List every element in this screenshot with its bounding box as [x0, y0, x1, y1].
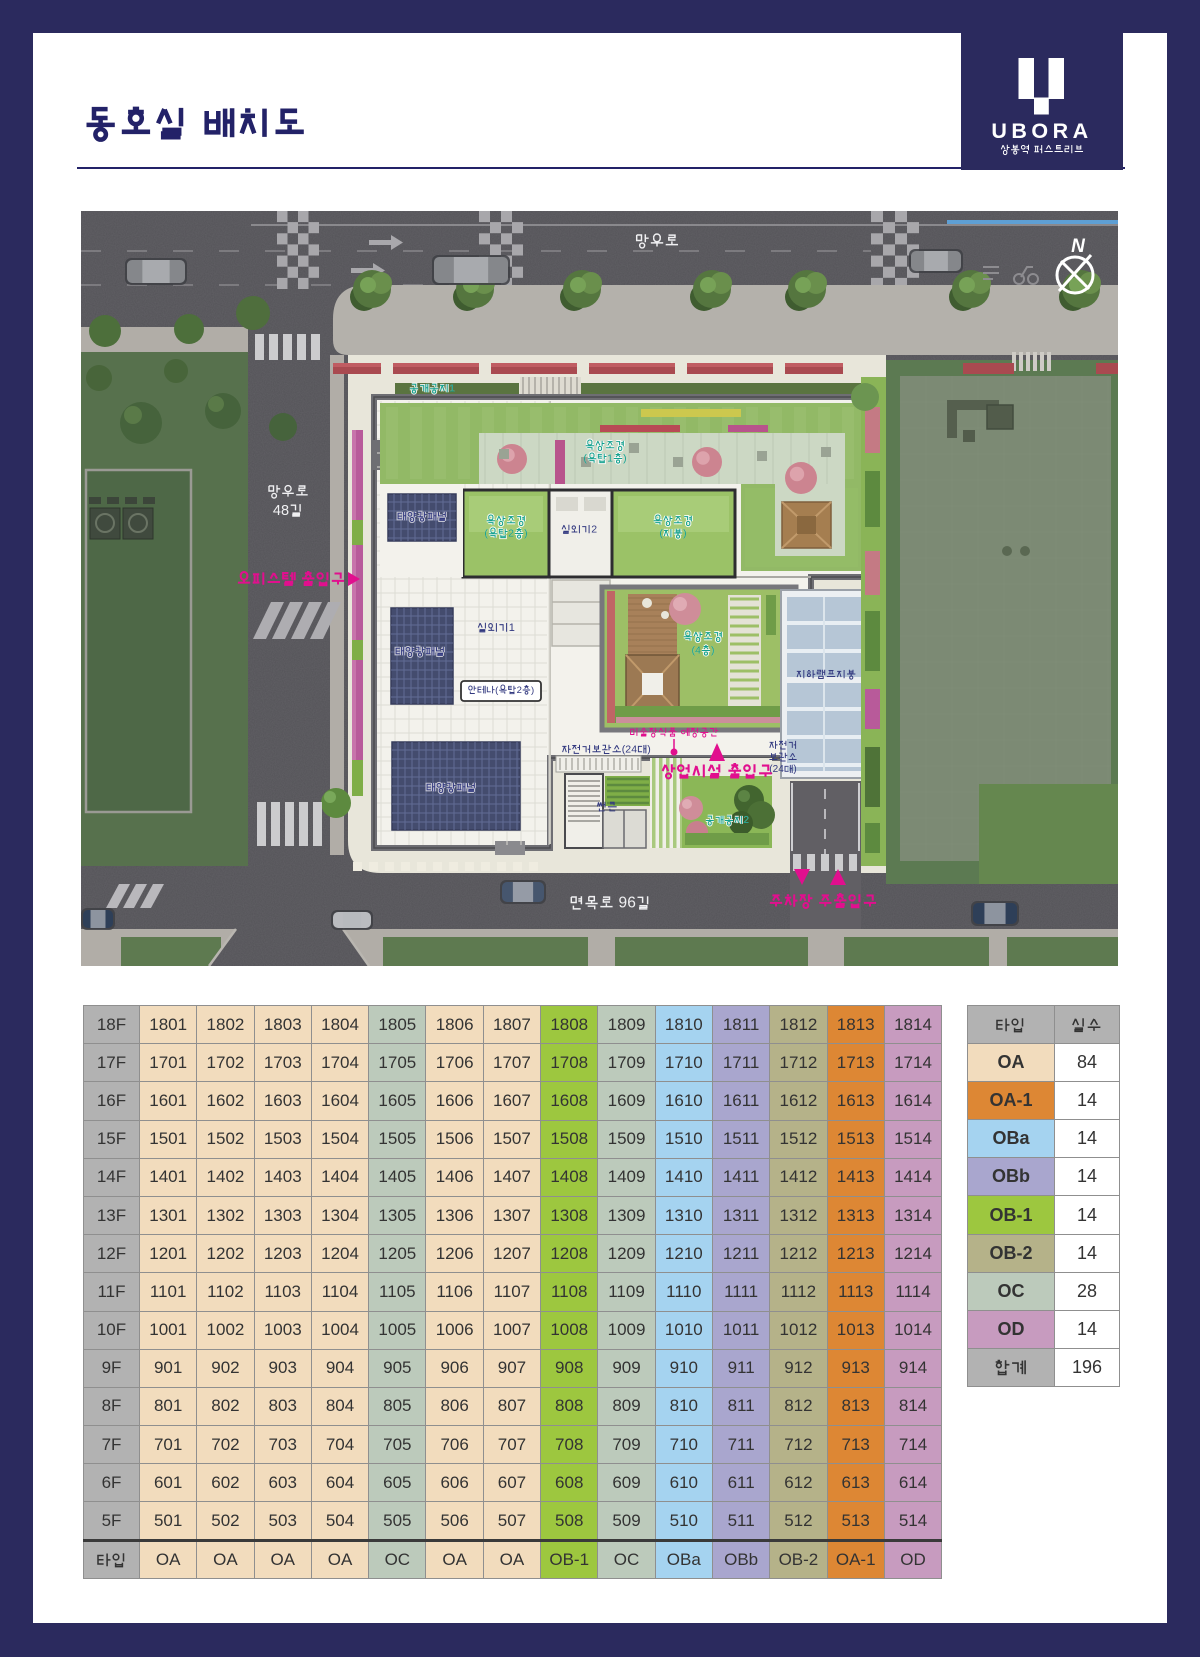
- svg-text:1: 1: [449, 383, 455, 395]
- svg-text:4: 4: [631, 744, 637, 756]
- svg-text:): ): [711, 645, 715, 657]
- svg-text:6: 6: [627, 895, 636, 912]
- svg-text:4: 4: [778, 764, 784, 775]
- svg-text:(: (: [583, 453, 587, 465]
- svg-text:): ): [683, 528, 687, 540]
- svg-text:N: N: [1071, 236, 1086, 257]
- svg-text:2: 2: [508, 528, 514, 540]
- svg-text:4: 4: [273, 503, 281, 519]
- svg-text:): ): [647, 744, 651, 756]
- svg-text:2: 2: [743, 815, 749, 826]
- svg-text:): ): [531, 685, 534, 696]
- svg-text:): ): [524, 528, 528, 540]
- svg-text:1: 1: [607, 453, 613, 465]
- svg-text:2: 2: [517, 685, 522, 696]
- svg-text:(: (: [659, 528, 663, 540]
- svg-text:UBORA: UBORA: [991, 119, 1092, 143]
- svg-text:): ): [623, 453, 627, 465]
- svg-text:8: 8: [281, 503, 289, 519]
- svg-text:): ): [793, 764, 796, 775]
- svg-text:1: 1: [509, 622, 515, 634]
- svg-text:9: 9: [619, 895, 628, 912]
- svg-text:4: 4: [695, 645, 701, 657]
- svg-text:2: 2: [591, 524, 597, 536]
- svg-text:(: (: [484, 528, 488, 540]
